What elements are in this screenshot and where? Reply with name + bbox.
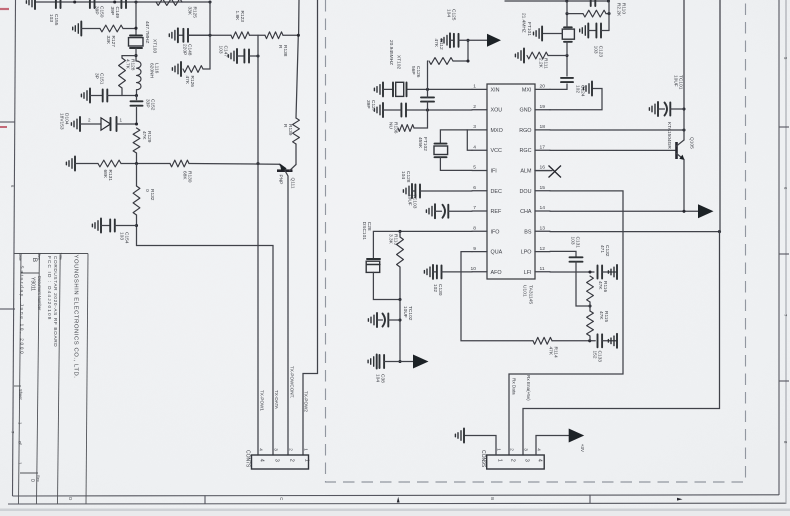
svg-text:D: D: [68, 497, 73, 500]
svg-text:5: 5: [473, 165, 476, 171]
svg-text:R127: R127: [110, 36, 116, 48]
svg-text:R112: R112: [438, 39, 444, 50]
svg-text:C: C: [279, 497, 284, 500]
svg-text:QUA: QUA: [491, 250, 503, 256]
svg-text:21.4MHZ: 21.4MHZ: [521, 13, 527, 33]
svg-text:Rev: Rev: [36, 475, 41, 482]
svg-text:4: 4: [473, 144, 476, 150]
svg-text:C154: C154: [123, 232, 129, 244]
svg-text:L116: L116: [153, 63, 159, 74]
svg-text:20.945MHZ: 20.945MHZ: [388, 40, 394, 65]
svg-text:FT101: FT101: [526, 22, 532, 36]
svg-text:11: 11: [540, 266, 545, 272]
svg-text:20: 20: [540, 84, 546, 90]
svg-text:R128: R128: [129, 59, 135, 71]
svg-text:R126: R126: [189, 76, 195, 88]
svg-text:TC101: TC101: [677, 75, 683, 90]
svg-text:18: 18: [540, 124, 546, 130]
svg-text:CHA: CHA: [520, 209, 532, 215]
svg-text:TC102: TC102: [407, 306, 413, 321]
svg-text:C132: C132: [604, 245, 610, 257]
svg-text:CORDUSTAR 2020-AS RF BOARD: CORDUSTAR 2020-AS RF BOARD: [53, 256, 58, 347]
svg-text:C148: C148: [186, 44, 192, 56]
svg-text:4: 4: [536, 448, 541, 451]
svg-text:2: 2: [473, 104, 476, 110]
svg-text:Q105: Q105: [689, 137, 695, 149]
svg-text:4: 4: [259, 459, 265, 462]
svg-text:TX-POWCONT.: TX-POWCONT.: [290, 366, 295, 398]
svg-text:3: 3: [524, 459, 530, 462]
svg-text:10: 10: [471, 266, 477, 272]
svg-text:13: 13: [540, 226, 546, 232]
svg-text:LFI: LFI: [524, 270, 532, 276]
svg-text:TX-POW1: TX-POW1: [260, 390, 265, 411]
svg-text:1: 1: [497, 459, 503, 462]
svg-text:2: 2: [509, 448, 514, 451]
svg-text:GND: GND: [520, 108, 532, 114]
svg-text:C38: C38: [379, 374, 385, 383]
svg-text:1: 1: [303, 448, 308, 451]
svg-text:3: 3: [473, 124, 476, 130]
svg-text:1: 1: [496, 448, 501, 451]
svg-text:TX-POW2: TX-POW2: [304, 391, 309, 412]
svg-text:12: 12: [540, 246, 546, 252]
svg-text:Y9011: Y9011: [30, 277, 36, 291]
svg-text:Title: Title: [58, 253, 63, 260]
svg-text:R113: R113: [392, 234, 398, 245]
svg-text:R116: R116: [602, 281, 608, 292]
svg-text:C152: C152: [149, 99, 155, 111]
svg-text:LPO: LPO: [521, 250, 532, 256]
svg-text:R114: R114: [552, 347, 558, 358]
svg-text:C150: C150: [98, 6, 104, 18]
svg-text:R139: R139: [287, 124, 293, 136]
svg-text:PNP: PNP: [278, 175, 284, 185]
svg-text:R110: R110: [620, 3, 626, 14]
svg-text:17: 17: [540, 144, 546, 150]
svg-text:2: 2: [289, 459, 295, 462]
svg-text:C131: C131: [574, 237, 580, 249]
svg-text:2: 2: [510, 459, 516, 462]
svg-text:C125: C125: [450, 9, 456, 21]
svg-text:R132: R132: [149, 189, 155, 201]
svg-text:YOUNGSHIN ELECTRONICS CO., LTD: YOUNGSHIN ELECTRONICS CO., LTD.: [73, 255, 79, 379]
svg-text:8: 8: [473, 226, 476, 232]
svg-text:7: 7: [473, 205, 476, 211]
svg-text:C147: C147: [222, 46, 228, 58]
svg-text:C127: C127: [370, 100, 376, 112]
svg-text:B: B: [490, 497, 495, 500]
svg-text:DEC: DEC: [491, 189, 502, 195]
svg-text:C126: C126: [415, 66, 421, 78]
svg-text:Saturday, June 10, 2000: Saturday, June 10, 2000: [20, 266, 25, 356]
svg-text:CON9S: CON9S: [480, 450, 486, 468]
svg-text:1: 1: [304, 459, 310, 462]
svg-text:AFO: AFO: [491, 270, 502, 276]
svg-text:RGC: RGC: [520, 148, 532, 154]
svg-text:FT102: FT102: [422, 137, 428, 151]
svg-text:Rx Data: Rx Data: [512, 378, 517, 395]
svg-text:C128: C128: [405, 171, 411, 183]
svg-text:R136: R136: [392, 122, 398, 134]
svg-text:19: 19: [540, 104, 546, 110]
svg-text:XOU: XOU: [491, 108, 503, 114]
svg-text:RGO: RGO: [519, 128, 531, 134]
svg-text:4: 4: [537, 459, 543, 462]
svg-text:C149: C149: [114, 7, 120, 19]
svg-text:DOU: DOU: [520, 189, 532, 195]
svg-text:CON7S: CON7S: [245, 450, 251, 468]
svg-text:9: 9: [473, 246, 476, 252]
svg-text:R125: R125: [191, 7, 197, 19]
svg-text:Sheet: Sheet: [18, 389, 23, 401]
svg-text:FCC ID : O44J20108: FCC ID : O44J20108: [47, 256, 52, 320]
svg-text:VCC: VCC: [491, 148, 502, 154]
svg-text:1: 1: [473, 84, 476, 90]
svg-text:16: 16: [540, 165, 546, 171]
svg-text:TX-DATA: TX-DATA: [274, 390, 279, 410]
svg-text:Rx Ena(+5v): Rx Ena(+5v): [526, 375, 531, 401]
svg-text:14: 14: [540, 205, 546, 211]
svg-text:BS: BS: [524, 229, 532, 235]
svg-text:TC103: TC103: [411, 194, 417, 209]
svg-text:R123: R123: [239, 11, 245, 23]
svg-text:C123: C123: [597, 46, 603, 58]
svg-text:C28: C28: [366, 222, 372, 231]
svg-text:R111: R111: [542, 58, 548, 69]
svg-text:2: 2: [88, 118, 91, 123]
svg-text:6: 6: [473, 185, 476, 191]
svg-text:C130: C130: [437, 284, 443, 296]
svg-text:Document Number: Document Number: [37, 276, 42, 311]
svg-text:C133: C133: [596, 351, 602, 363]
svg-text:15: 15: [540, 185, 546, 191]
svg-text:D104: D104: [63, 113, 69, 125]
svg-text:XIN: XIN: [491, 87, 500, 93]
svg-text:IFO: IFO: [491, 229, 500, 235]
svg-text:3: 3: [273, 448, 278, 451]
svg-text:1: 1: [120, 118, 123, 123]
svg-text:3: 3: [274, 459, 280, 462]
svg-text:Date: Date: [18, 253, 23, 261]
svg-text:MXO: MXO: [491, 128, 503, 134]
svg-text:U101: U101: [522, 285, 528, 297]
svg-text:R130: R130: [186, 171, 192, 183]
svg-text:TA31145: TA31145: [528, 285, 534, 304]
svg-text:+3V: +3V: [580, 444, 585, 453]
svg-text:4: 4: [258, 448, 263, 451]
svg-text:0: 0: [29, 479, 35, 482]
svg-text:R129: R129: [146, 131, 152, 143]
svg-text:Q111: Q111: [290, 178, 296, 189]
svg-text:C155: C155: [53, 14, 59, 26]
svg-text:ALM: ALM: [520, 169, 532, 175]
svg-text:R131: R131: [107, 170, 113, 182]
svg-text:C151: C151: [98, 73, 104, 85]
svg-text:C124: C124: [579, 85, 585, 97]
svg-text:3: 3: [523, 448, 528, 451]
svg-text:B: B: [31, 258, 38, 262]
svg-text:MXI: MXI: [522, 87, 532, 93]
svg-text:XT102: XT102: [396, 55, 402, 69]
svg-text:R138: R138: [282, 45, 288, 57]
svg-text:2: 2: [288, 448, 293, 451]
svg-text:XT103: XT103: [152, 39, 158, 53]
svg-text:IFI: IFI: [491, 169, 497, 175]
svg-text:KTA1504GR: KTA1504GR: [666, 122, 672, 149]
svg-text:R115: R115: [603, 311, 609, 322]
svg-text:REF: REF: [491, 209, 502, 215]
svg-text:447.7MHZ: 447.7MHZ: [144, 21, 150, 43]
